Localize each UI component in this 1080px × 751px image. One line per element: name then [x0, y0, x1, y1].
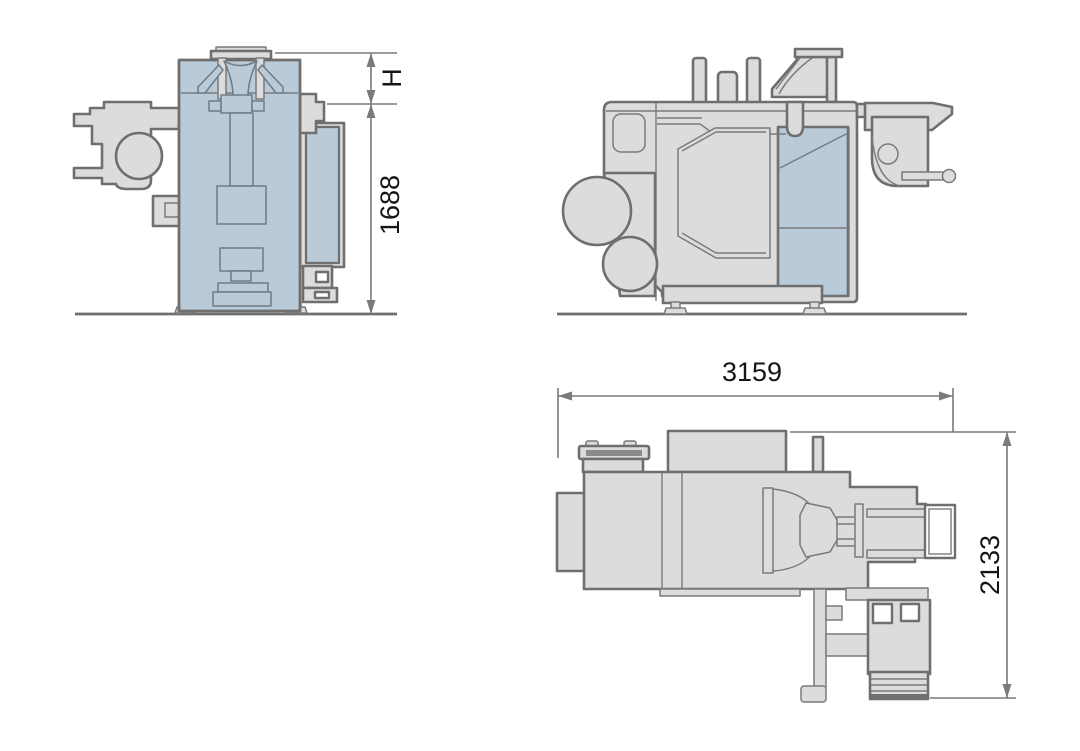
plan-left-tab — [557, 493, 585, 571]
plan-top-post — [813, 437, 823, 472]
front-side-panel — [306, 127, 339, 263]
side-top-slot — [787, 102, 803, 136]
plan-arrow-left — [558, 392, 572, 401]
plan-bottom-foot — [801, 686, 826, 702]
front-lower-stub — [231, 271, 251, 281]
front-arrow-1688-bottom — [367, 300, 376, 314]
plan-arrow-bottom — [1003, 684, 1012, 698]
plan-discharge-bar-bottom — [867, 550, 925, 558]
side-post-right — [747, 58, 760, 104]
side-post-left — [693, 58, 706, 104]
plan-roller-stripe — [586, 450, 642, 456]
front-motor-circle — [116, 133, 162, 179]
dimension-label-h: H — [377, 68, 407, 88]
side-accessory-circle — [878, 144, 898, 164]
plan-accessory-notch-right — [901, 604, 919, 621]
front-bracket-lower-hole — [315, 292, 329, 298]
film-roll-large — [563, 177, 631, 245]
front-arrow-h-top — [367, 53, 376, 67]
plan-bottom-stub-small — [826, 606, 842, 620]
plan-top-box — [668, 431, 786, 472]
side-hopper-plate — [795, 49, 842, 57]
side-base-strip — [663, 286, 822, 303]
front-neck-tab-right — [252, 101, 264, 111]
drawing-svg: H 1688 — [0, 0, 1080, 751]
plan-bottom-bar — [814, 589, 826, 688]
front-base-plate-1 — [218, 283, 268, 292]
plan-accessory-notch-left — [873, 604, 892, 623]
front-arrow-1688-top — [367, 104, 376, 118]
plan-view: 3159 2133 — [557, 357, 1016, 702]
dimension-label-3159: 3159 — [722, 357, 782, 387]
dimension-label-1688: 1688 — [375, 175, 405, 235]
front-mid-box — [217, 186, 266, 224]
technical-drawing-canvas: H 1688 — [0, 0, 1080, 751]
plan-ladder-base — [870, 694, 928, 699]
front-arrow-h-bottom — [367, 90, 376, 104]
side-left-inset — [613, 114, 645, 152]
side-post-middle — [718, 72, 737, 104]
plan-bell-bar — [763, 488, 773, 573]
side-hopper-support — [827, 57, 836, 102]
front-neck-tab-left — [209, 101, 221, 111]
plan-bell-bracket — [855, 504, 863, 557]
front-forming-column — [230, 113, 253, 186]
side-view — [557, 49, 967, 314]
plan-bottom-stub-large — [826, 634, 872, 656]
side-accessory-rod-ball — [943, 170, 956, 183]
front-bracket-upper-hole — [316, 272, 328, 282]
plan-main-body — [584, 472, 926, 589]
front-base-plate-2 — [213, 292, 271, 306]
dimension-label-2133: 2133 — [975, 535, 1005, 595]
plan-discharge-bar-top — [867, 509, 925, 517]
plan-arrow-right — [939, 392, 953, 401]
plan-arrow-top — [1003, 432, 1012, 446]
plan-bell-octagon — [800, 503, 837, 557]
side-accessory-rod — [902, 172, 947, 180]
plan-bottom-strip — [660, 589, 800, 596]
front-neck-box — [221, 95, 252, 113]
front-view: H 1688 — [74, 47, 407, 314]
plan-roller-platform — [583, 459, 643, 472]
plan-bottom-band — [846, 588, 928, 600]
film-roll-small — [603, 237, 657, 291]
front-funnel-post-right — [256, 58, 264, 99]
front-lower-box — [220, 248, 263, 271]
